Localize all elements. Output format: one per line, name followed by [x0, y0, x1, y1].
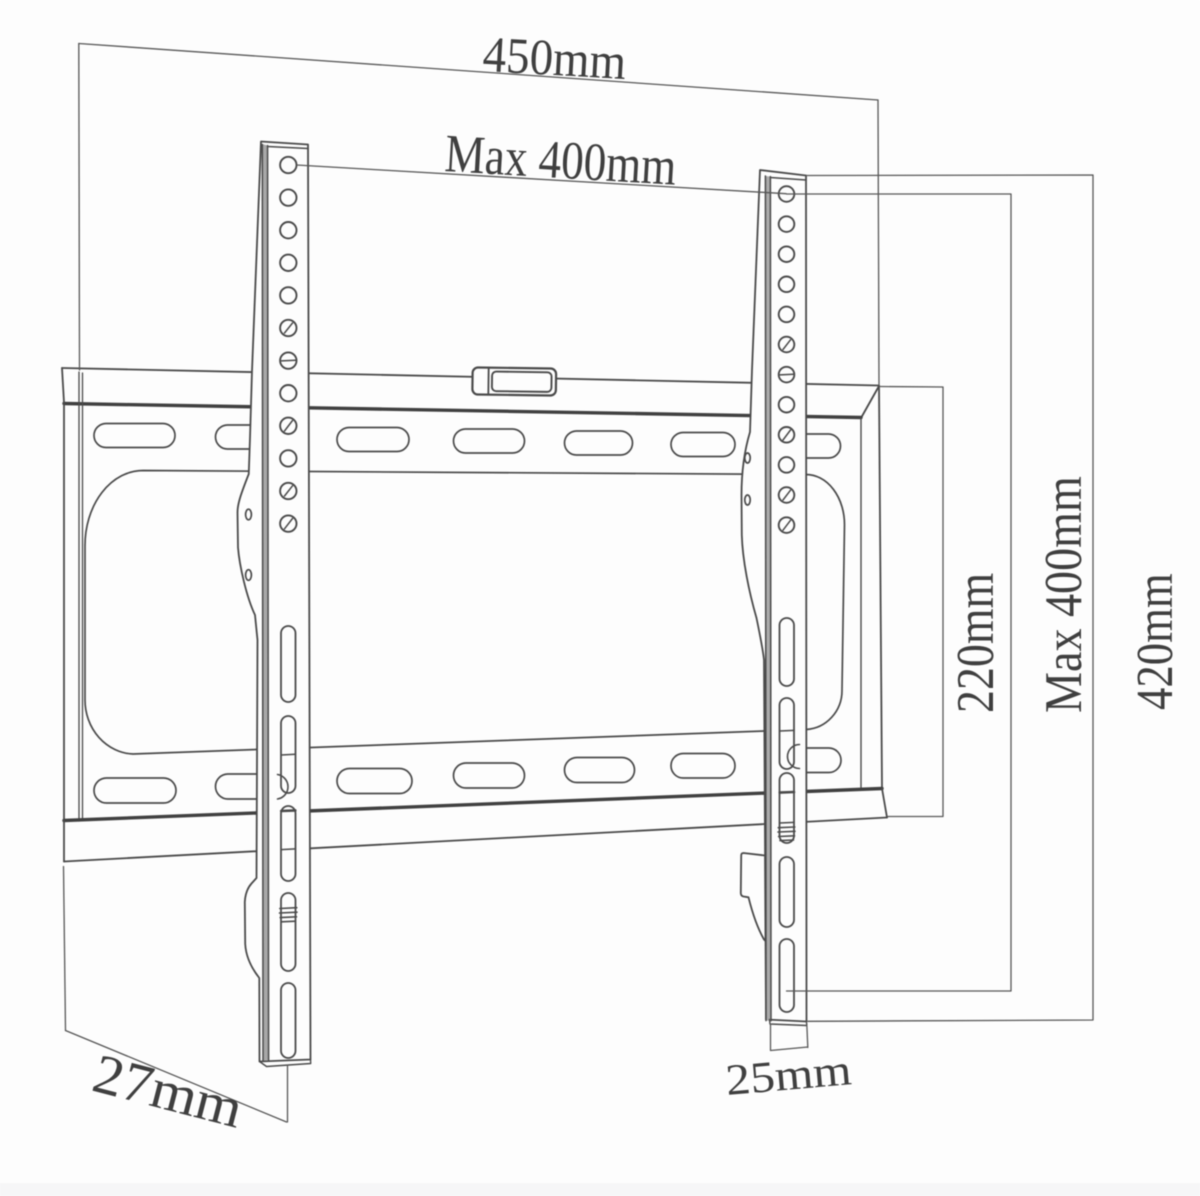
svg-text:420mm: 420mm: [1127, 573, 1184, 710]
svg-text:Max 400mm: Max 400mm: [1034, 476, 1093, 713]
svg-text:450mm: 450mm: [481, 25, 627, 90]
svg-text:220mm: 220mm: [946, 573, 1005, 713]
